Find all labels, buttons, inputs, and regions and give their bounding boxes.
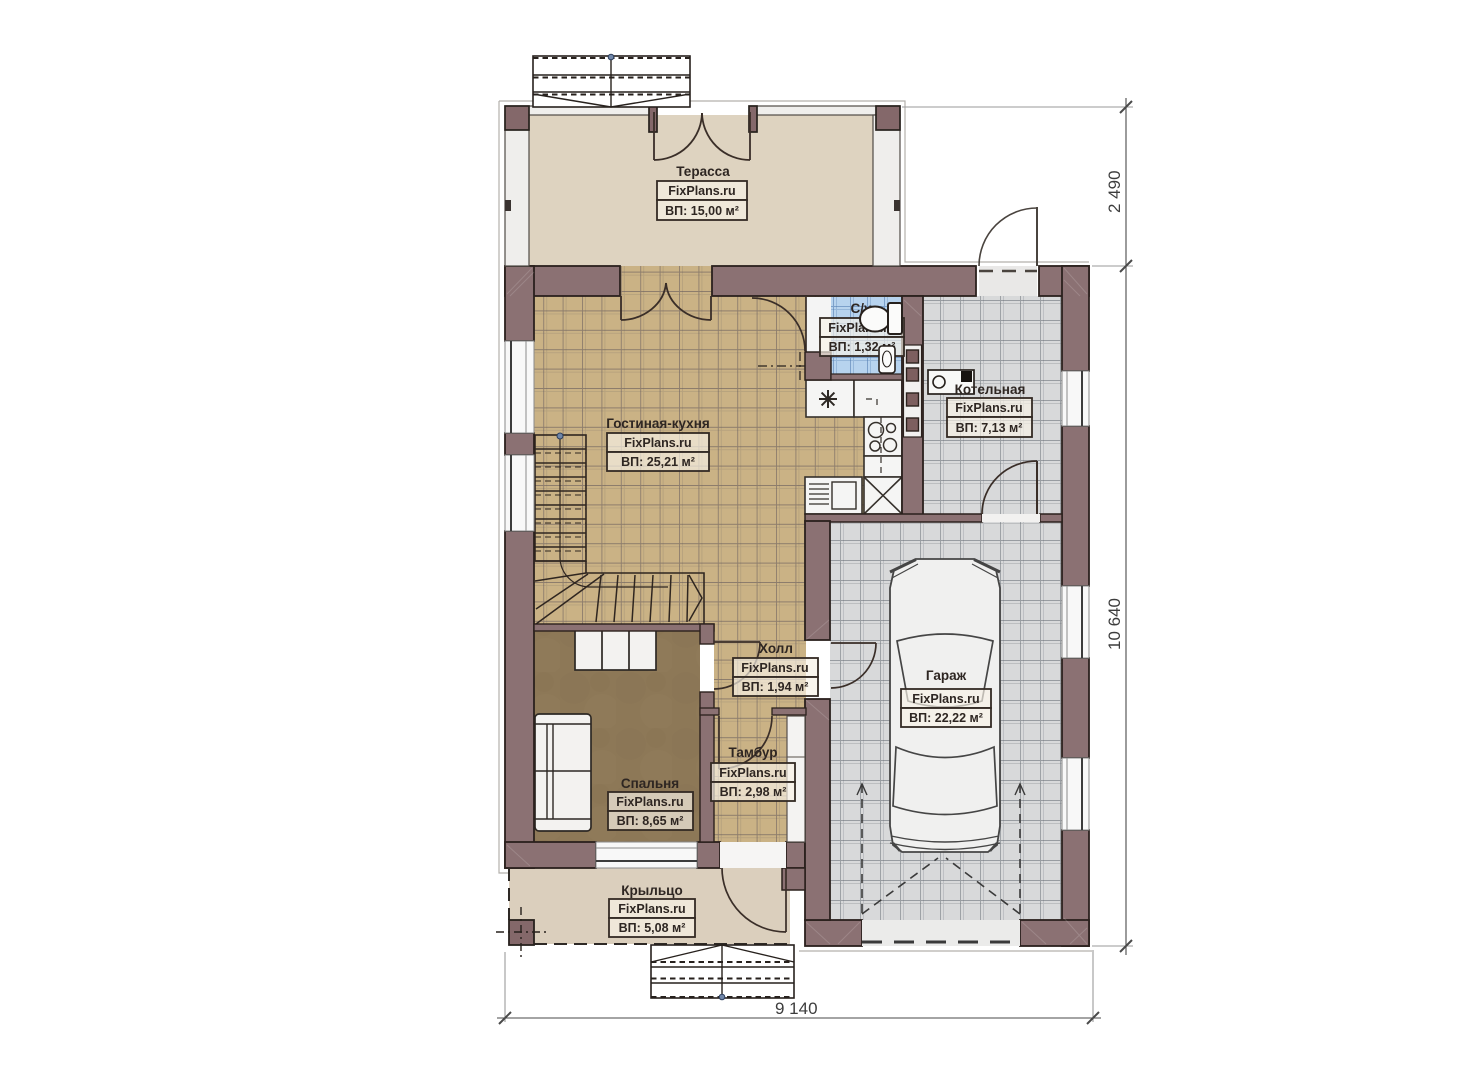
svg-text:10 640: 10 640 bbox=[1105, 598, 1124, 650]
svg-text:ВП: 7,13 м²: ВП: 7,13 м² bbox=[956, 421, 1023, 435]
svg-text:FixPlans.ru: FixPlans.ru bbox=[624, 436, 691, 450]
svg-text:Холл: Холл bbox=[759, 641, 793, 656]
svg-text:FixPlans.ru: FixPlans.ru bbox=[616, 795, 683, 809]
svg-text:ВП: 2,98 м²: ВП: 2,98 м² bbox=[720, 785, 787, 799]
svg-text:Спальня: Спальня bbox=[621, 776, 679, 791]
svg-text:FixPlans.ru: FixPlans.ru bbox=[719, 766, 786, 780]
svg-text:FixPlans.ru: FixPlans.ru bbox=[955, 401, 1022, 415]
svg-text:Котельная: Котельная bbox=[955, 382, 1026, 397]
svg-text:ВП: 15,00 м²: ВП: 15,00 м² bbox=[665, 204, 739, 218]
svg-text:Крыльцо: Крыльцо bbox=[621, 883, 682, 898]
svg-text:Гараж: Гараж bbox=[926, 668, 967, 683]
svg-text:Гостиная-кухня: Гостиная-кухня bbox=[606, 416, 709, 431]
svg-text:ВП: 25,21 м²: ВП: 25,21 м² bbox=[621, 455, 695, 469]
svg-text:9 140: 9 140 bbox=[775, 999, 818, 1018]
svg-text:ВП: 5,08 м²: ВП: 5,08 м² bbox=[619, 921, 686, 935]
svg-text:Тамбур: Тамбур bbox=[729, 745, 778, 760]
svg-text:FixPlans.ru: FixPlans.ru bbox=[618, 902, 685, 916]
svg-text:ВП: 22,22 м²: ВП: 22,22 м² bbox=[909, 711, 983, 725]
svg-text:FixPlans.ru: FixPlans.ru bbox=[912, 692, 979, 706]
svg-text:2 490: 2 490 bbox=[1105, 170, 1124, 213]
svg-text:ВП: 1,94 м²: ВП: 1,94 м² bbox=[742, 680, 809, 694]
svg-text:ВП: 8,65 м²: ВП: 8,65 м² bbox=[617, 814, 684, 828]
svg-text:Терасса: Терасса bbox=[676, 164, 730, 179]
svg-text:FixPlans.ru: FixPlans.ru bbox=[668, 184, 735, 198]
svg-text:FixPlans.ru: FixPlans.ru bbox=[741, 661, 808, 675]
